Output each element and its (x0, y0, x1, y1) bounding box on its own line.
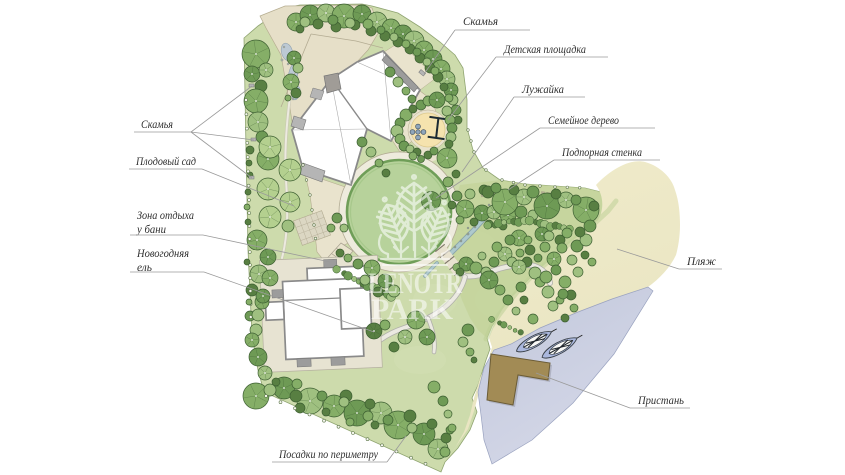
svg-text:у бани: у бани (136, 224, 166, 236)
svg-text:Плодовый сад: Плодовый сад (135, 156, 196, 168)
svg-text:Детская площадка: Детская площадка (503, 44, 586, 56)
svg-text:Зона отдыха: Зона отдыха (137, 210, 194, 222)
svg-text:Новогодняя: Новогодняя (136, 248, 189, 260)
svg-text:Скамья: Скамья (141, 119, 173, 131)
svg-text:Посадки по периметру: Посадки по периметру (278, 449, 378, 461)
svg-text:Подпорная стенка: Подпорная стенка (561, 147, 642, 159)
svg-text:PARK: PARK (371, 293, 454, 326)
svg-text:Семейное дерево: Семейное дерево (548, 115, 619, 127)
svg-text:Лужайка: Лужайка (521, 84, 564, 96)
svg-text:Пляж: Пляж (686, 256, 717, 268)
svg-text:Скамья: Скамья (463, 16, 498, 28)
svg-text:Пристань: Пристань (637, 395, 684, 407)
